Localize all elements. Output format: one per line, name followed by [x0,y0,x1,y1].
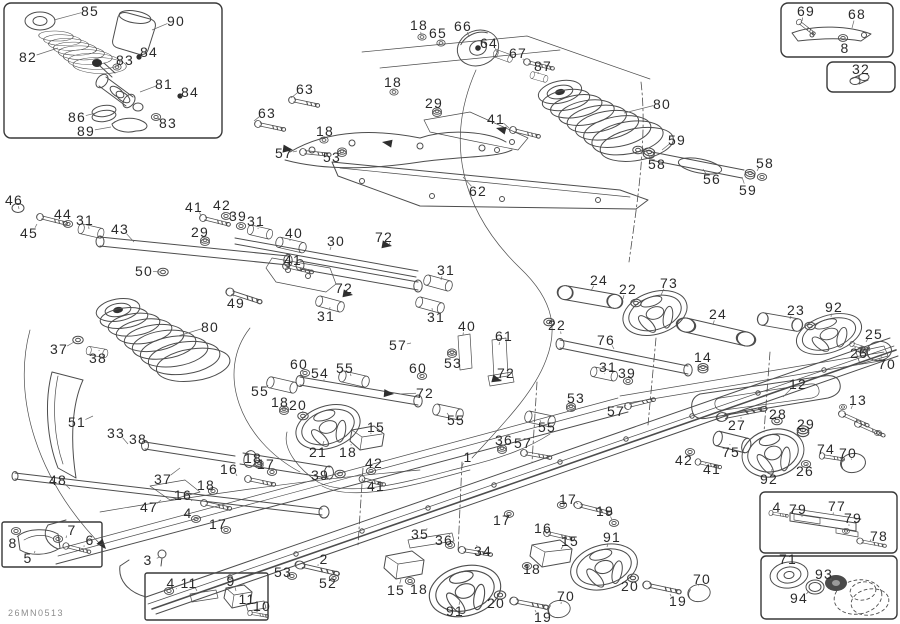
part-label: 31 [76,213,94,227]
part-label: 78 [870,529,888,543]
part-label: 50 [135,264,153,278]
part-label: 60 [290,357,308,371]
part-label: 18 [271,395,289,409]
part-label: 17 [209,517,227,531]
part-label: 72 [375,230,393,244]
part-label: 29 [191,225,209,239]
part-label: 9 [227,574,236,588]
part-label: 63 [258,106,276,120]
part-label: 41 [367,479,385,493]
part-label: 30 [327,234,345,248]
part-label: 6 [86,533,95,547]
part-label: 39 [229,209,247,223]
part-label: 22 [619,282,637,296]
part-label: 68 [848,7,866,21]
part-label: 17 [493,513,511,527]
part-label: 84 [181,85,199,99]
part-label: 70 [839,446,857,460]
part-label: 31 [427,310,445,324]
part-label: 31 [599,360,617,374]
part-label: 26 [796,464,814,478]
part-label: 41 [487,112,505,126]
part-label: 19 [534,610,552,624]
part-label: 53 [567,391,585,405]
part-label: 66 [454,19,472,33]
part-label: 27 [728,418,746,432]
part-label: 59 [739,183,757,197]
part-label: 92 [760,472,778,486]
part-label: 90 [167,14,185,28]
part-label: 37 [154,472,172,486]
part-label: 53 [274,565,292,579]
part-label: 20 [487,596,505,610]
part-label: 13 [849,393,867,407]
part-label: 18 [410,18,428,32]
part-label: 69 [797,4,815,18]
part-label: 80 [653,97,671,111]
part-label: 32 [852,62,870,76]
part-label: 61 [495,329,513,343]
part-label: 15 [561,534,579,548]
part-label: 38 [129,432,147,446]
part-label: 89 [77,124,95,138]
part-label: 17 [257,457,275,471]
part-label: 57 [389,338,407,352]
part-label: 70 [878,357,896,371]
part-label: 60 [409,361,427,375]
part-labels-layer: 8590828384818486838969688321865666467878… [0,0,900,624]
part-label: 55 [538,420,556,434]
part-label: 15 [367,420,385,434]
part-label: 59 [668,133,686,147]
part-label: 45 [20,226,38,240]
part-label: 16 [174,488,192,502]
part-label: 12 [789,377,807,391]
part-label: 94 [790,591,808,605]
part-label: 31 [317,309,335,323]
part-label: 83 [159,116,177,130]
part-label: 74 [817,442,835,456]
part-label: 53 [444,356,462,370]
part-label: 35 [411,527,429,541]
part-label: 19 [596,504,614,518]
part-label: 76 [597,333,615,347]
part-label: 21 [309,445,327,459]
part-label: 48 [49,473,67,487]
part-label: 24 [590,273,608,287]
part-label: 11 [181,576,198,590]
part-label: 4 [773,500,782,514]
part-label: 24 [709,307,727,321]
part-label: 15 [387,583,405,597]
part-label: 41 [185,200,203,214]
part-label: 33 [107,426,125,440]
part-label: 62 [469,184,487,198]
part-label: 87 [534,59,552,73]
part-label: 36 [435,533,453,547]
part-label: 47 [140,500,158,514]
part-label: 41 [284,253,302,267]
part-label: 57 [607,404,625,418]
part-label: 39 [618,366,636,380]
part-label: 91 [446,604,464,618]
part-label: 58 [756,156,774,170]
part-label: 46 [5,193,23,207]
part-label: 51 [68,415,86,429]
part-label: 40 [458,319,476,333]
part-label: 38 [89,351,107,365]
part-label: 58 [648,157,666,171]
part-label: 4 [184,506,193,520]
part-label: 64 [480,36,498,50]
part-label: 82 [19,50,37,64]
part-label: 86 [68,110,86,124]
part-label: 49 [227,296,245,310]
part-label: 44 [54,207,72,221]
part-label: 79 [789,502,807,516]
part-label: 5 [24,551,33,565]
part-label: 93 [815,567,833,581]
part-label: 84 [140,45,158,59]
part-label: 63 [296,82,314,96]
part-label: 14 [694,350,712,364]
part-label: 37 [50,342,68,356]
part-label: 70 [693,572,711,586]
part-label: 57 [514,436,532,450]
part-label: 41 [703,462,721,476]
part-label: 39 [311,468,329,482]
part-label: 85 [81,4,99,18]
part-label: 70 [557,589,575,603]
part-label: 2 [320,552,329,566]
part-label: 80 [201,320,219,334]
part-label: 67 [509,46,527,60]
part-label: 92 [825,300,843,314]
part-label: 26 [850,346,868,360]
part-label: 20 [621,579,639,593]
part-label: 16 [220,462,238,476]
part-label: 18 [197,478,215,492]
part-label: 42 [365,456,383,470]
part-label: 53 [323,150,341,164]
part-label: 65 [429,26,447,40]
part-label: 79 [844,511,862,525]
part-label: 20 [289,398,307,412]
drawing-code: 26MN0513 [8,608,64,618]
part-label: 31 [247,214,265,228]
part-label: 29 [425,96,443,110]
part-label: 56 [703,172,721,186]
part-label: 34 [474,544,492,558]
part-label: 4 [167,576,176,590]
part-label: 1 [464,450,473,464]
part-label: 19 [669,594,687,608]
part-label: 52 [319,576,337,590]
part-label: 18 [523,562,541,576]
part-label: 43 [111,222,129,236]
part-label: 23 [787,303,805,317]
part-label: 55 [336,361,354,375]
part-label: 75 [722,445,740,459]
part-label: 55 [447,413,465,427]
part-label: 72 [416,386,434,400]
part-label: 16 [534,521,552,535]
part-label: 7 [68,523,77,537]
part-label: 18 [316,124,334,138]
part-label: 29 [797,417,815,431]
part-label: 18 [384,75,402,89]
part-label: 28 [769,407,787,421]
part-label: 54 [311,366,329,380]
part-label: 18 [339,445,357,459]
part-label: 83 [116,53,134,67]
part-label: 25 [865,327,883,341]
part-label: 57 [275,146,293,160]
part-label: 8 [841,41,850,55]
part-label: 72 [335,281,353,295]
part-label: 17 [559,492,577,506]
part-label: 91 [603,530,621,544]
part-label: 81 [155,77,173,91]
part-label: 72 [497,366,515,380]
part-label: 71 [779,552,797,566]
part-label: 73 [660,276,678,290]
part-label: 36 [495,433,513,447]
part-label: 55 [251,384,269,398]
parts-diagram-page: 8590828384818486838969688321865666467878… [0,0,900,624]
part-label: 18 [410,582,428,596]
part-label: 10 [253,599,271,613]
part-label: 22 [548,318,566,332]
part-label: 3 [144,553,153,567]
part-label: 40 [285,226,303,240]
part-label: 42 [675,453,693,467]
part-label: 31 [437,263,455,277]
part-label: 8 [9,536,18,550]
